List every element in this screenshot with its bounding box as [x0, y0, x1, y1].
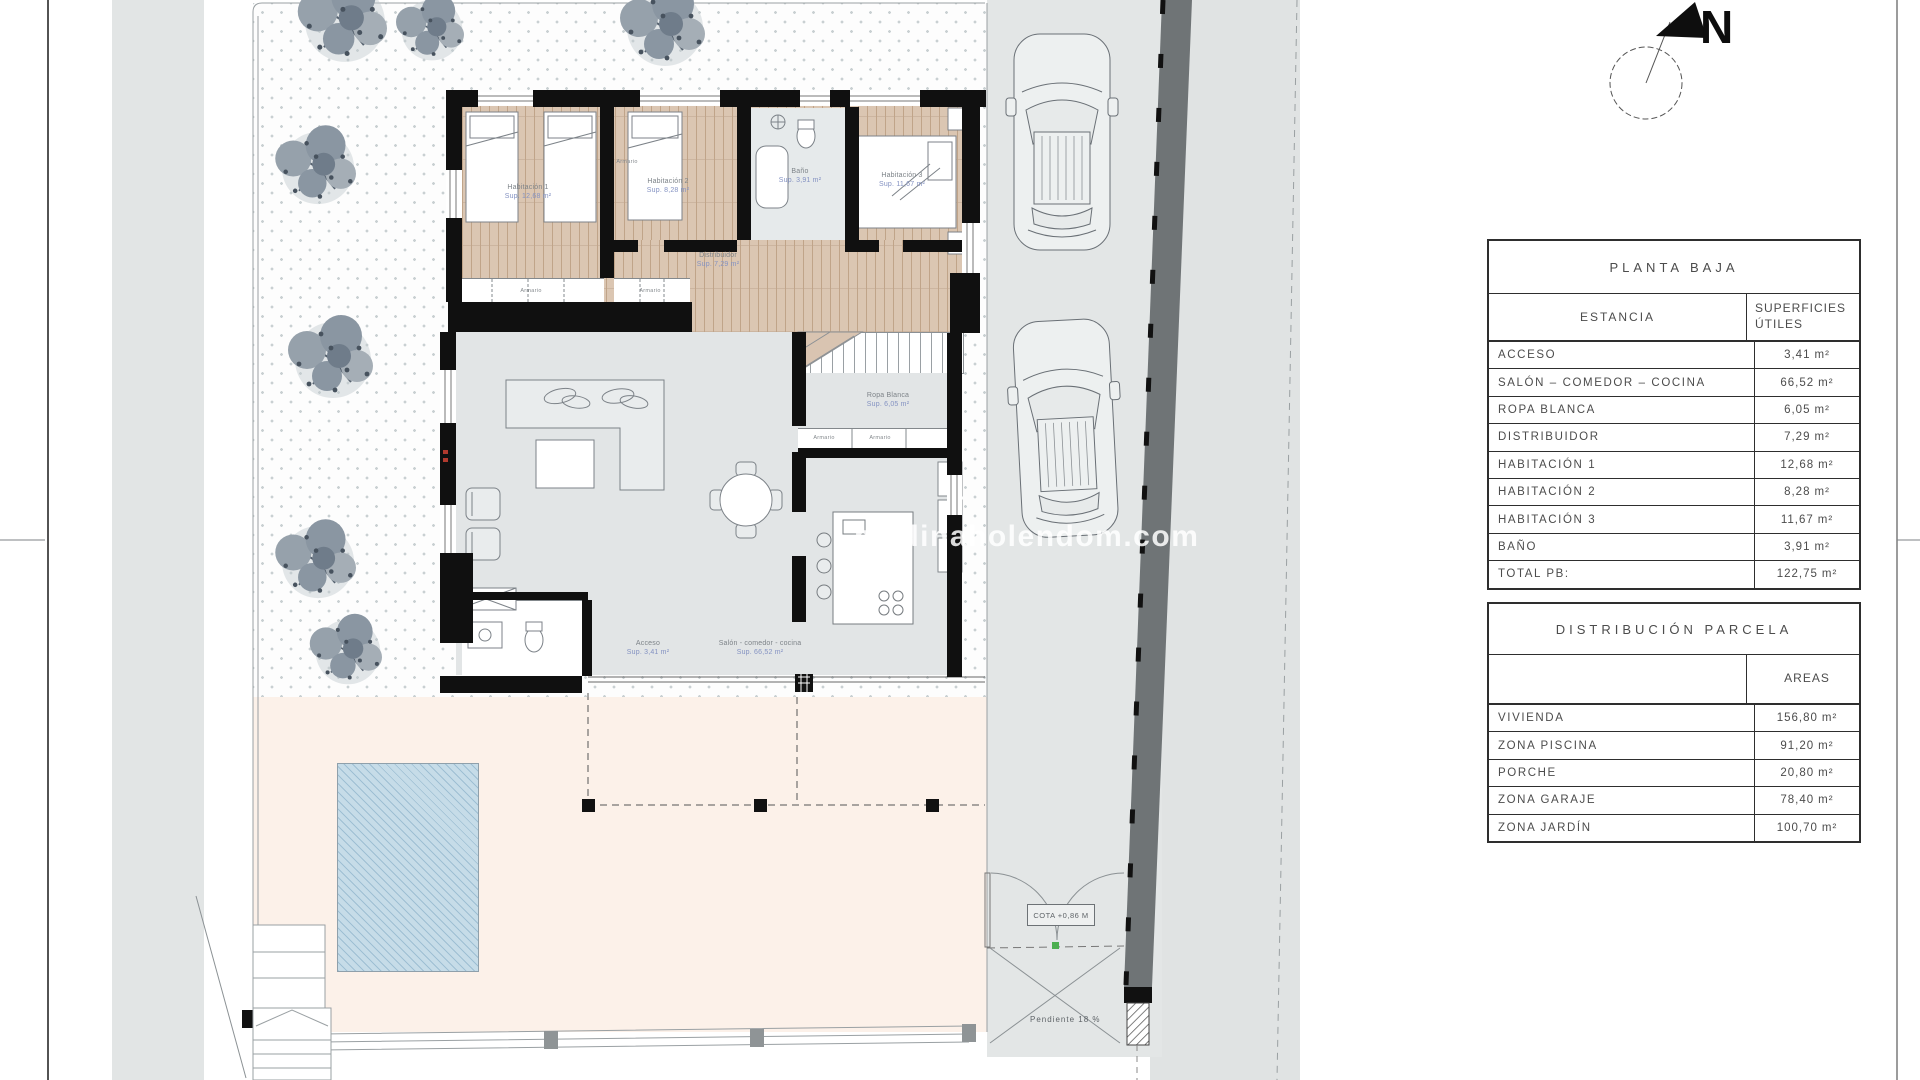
closet-label: Armario	[520, 288, 541, 294]
table-row: ROPA BLANCA 6,05m²	[1489, 396, 1859, 423]
table-row: HABITACIÓN 3 11,67m²	[1489, 505, 1859, 532]
closet-label: Armario	[616, 159, 637, 165]
north-arrow-icon	[1610, 2, 1707, 119]
swimming-pool	[337, 763, 479, 972]
table-row: ZONA GARAJE 78,40m²	[1489, 786, 1859, 813]
room-label-habitacion2: Habitación 2Sup. 8,28 m²	[647, 177, 689, 195]
room-label-salon: Salón - comedor - cocinaSup. 66,52 m²	[719, 639, 802, 657]
table-row: ZONA PISCINA 91,20m²	[1489, 731, 1859, 758]
table-row: ZONA JARDÍN 100,70m²	[1489, 814, 1859, 841]
floor-plan-sheet: Habitación 1Sup. 12,68 m² Habitación 2Su…	[0, 0, 1920, 1080]
closet-label: Armario	[639, 288, 660, 294]
planta-baja-table: PLANTA BAJA ESTANCIA SUPERFICIES ÚTILES …	[1487, 239, 1861, 590]
street-sidewalk	[112, 0, 204, 1080]
column-header-areas: AREAS	[1746, 655, 1859, 703]
table-row: PORCHE 20,80m²	[1489, 759, 1859, 786]
slope-label: Pendiente 18 %	[1030, 1015, 1101, 1024]
north-label: N	[1700, 0, 1733, 54]
staircase	[798, 332, 964, 374]
utility-room-floor	[462, 600, 588, 676]
table-row: ACCESO 3,41m²	[1489, 341, 1859, 368]
distribucion-parcela-table: DISTRIBUCIÓN PARCELA AREAS VIVIENDA 156,…	[1487, 602, 1861, 843]
column-header-estancia: ESTANCIA	[1489, 294, 1746, 340]
room-label-habitacion1: Habitación 1Sup. 12,68 m²	[505, 183, 552, 201]
table-row-total: TOTAL PB: 122,75m²	[1489, 560, 1859, 587]
room-label-habitacion3: Habitación 3Sup. 11,67 m²	[879, 171, 925, 189]
column-header-superficies: SUPERFICIES ÚTILES	[1746, 294, 1859, 340]
table-row: VIVIENDA 156,80m²	[1489, 704, 1859, 731]
room-label-ropa-blanca: Ropa BlancaSup. 6,05 m²	[867, 391, 909, 409]
table-row: HABITACIÓN 2 8,28m²	[1489, 478, 1859, 505]
table-row: DISTRIBUIDOR 7,29m²	[1489, 423, 1859, 450]
closet-label: Armario	[813, 435, 834, 441]
watermark: medinaholendom.com	[854, 520, 1199, 554]
table-row: SALÓN – COMEDOR – COCINA 66,52m²	[1489, 368, 1859, 395]
table-title: PLANTA BAJA	[1489, 241, 1859, 294]
room-label-acceso: AccesoSup. 3,41 m²	[627, 639, 669, 657]
cota-level-box: COTA +0,86 M	[1027, 904, 1095, 926]
table-title: DISTRIBUCIÓN PARCELA	[1489, 604, 1859, 655]
table-row: HABITACIÓN 1 12,68m²	[1489, 451, 1859, 478]
closet-label: Armario	[869, 435, 890, 441]
room-label-distribuidor: DistribuidorSup. 7,29 m²	[697, 251, 739, 269]
room-label-bano: BañoSup. 3,91 m²	[779, 167, 821, 185]
table-row: BAÑO 3,91m²	[1489, 533, 1859, 560]
